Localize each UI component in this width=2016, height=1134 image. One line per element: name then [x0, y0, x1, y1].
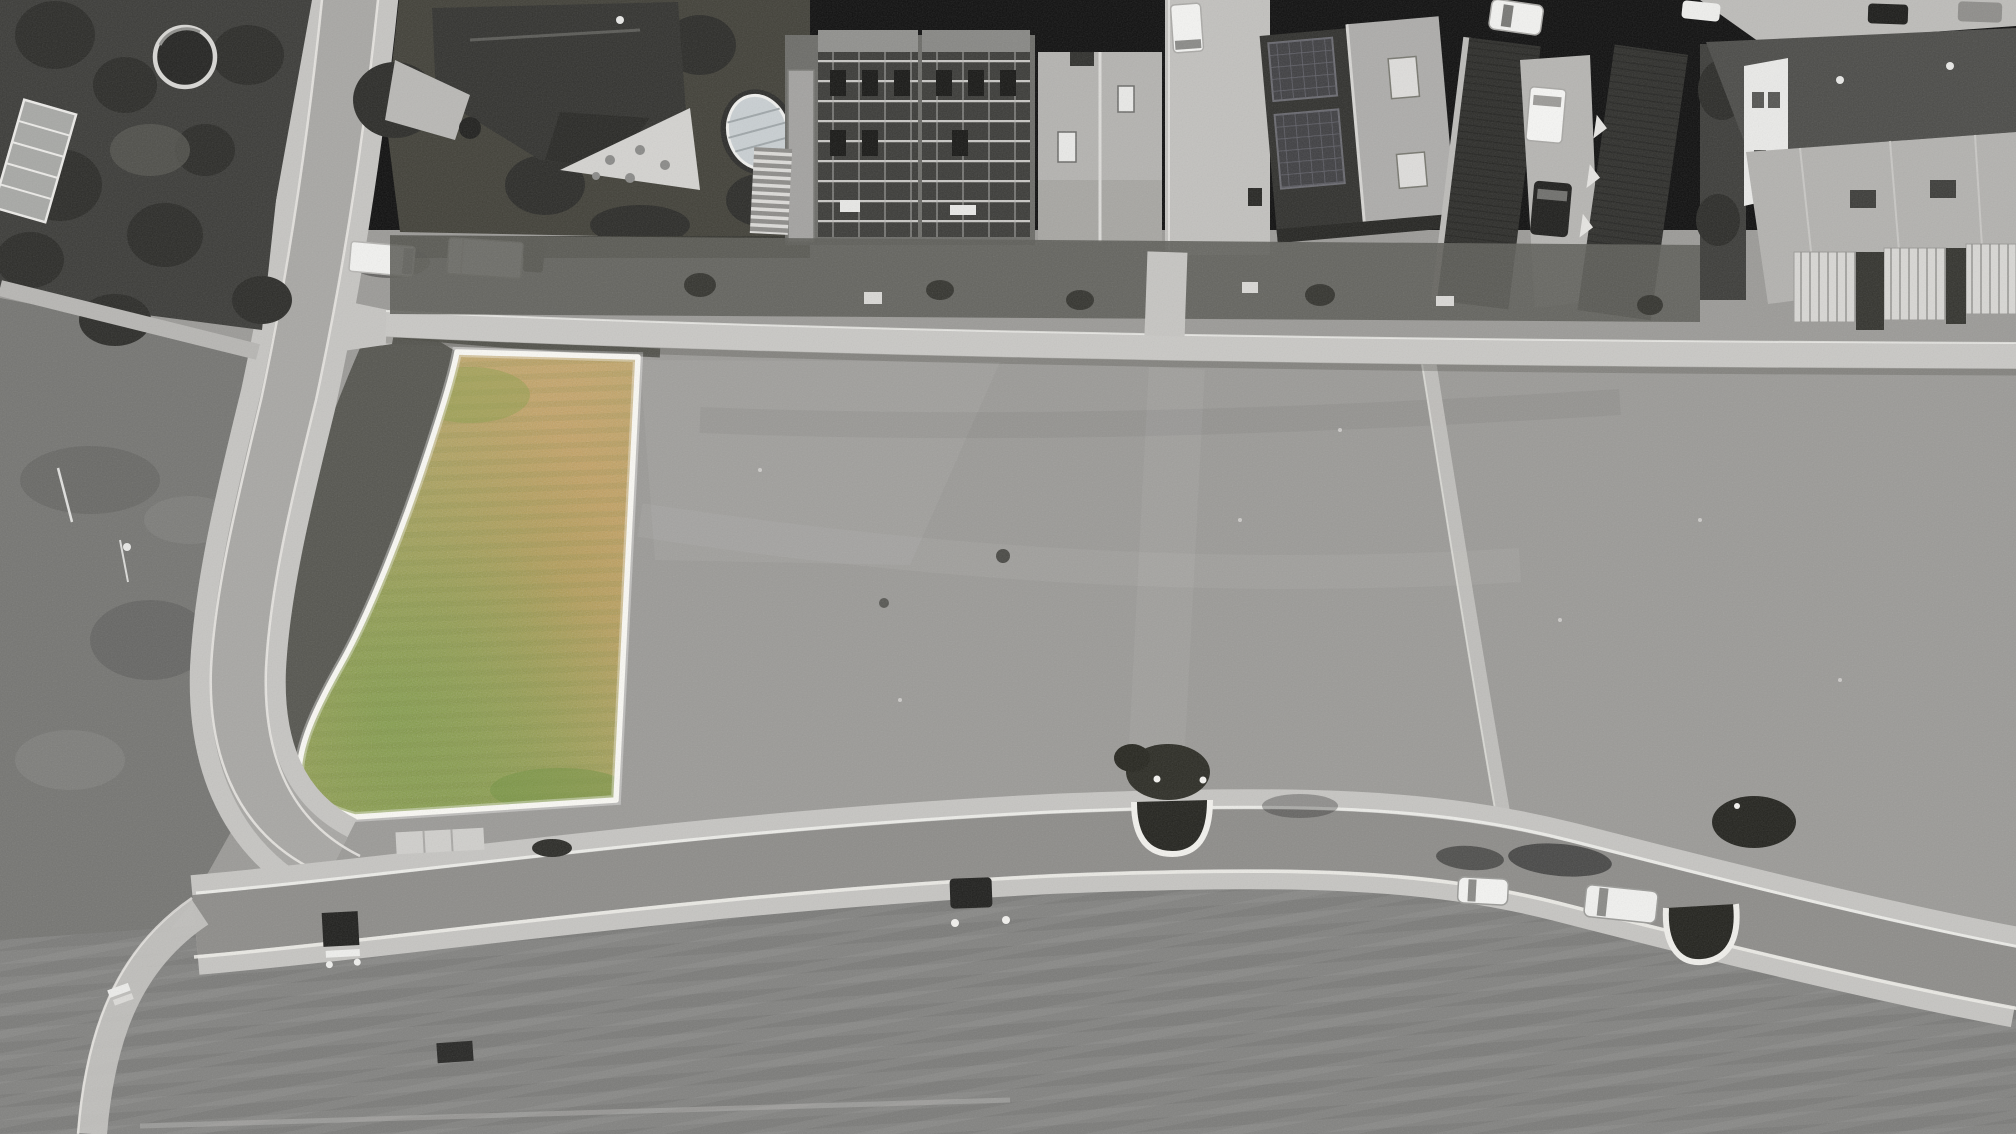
- aerial-photo-stage: [0, 0, 2016, 1134]
- aerial-photo: [0, 0, 2016, 1134]
- photo-grain-overlay: [0, 0, 2016, 1134]
